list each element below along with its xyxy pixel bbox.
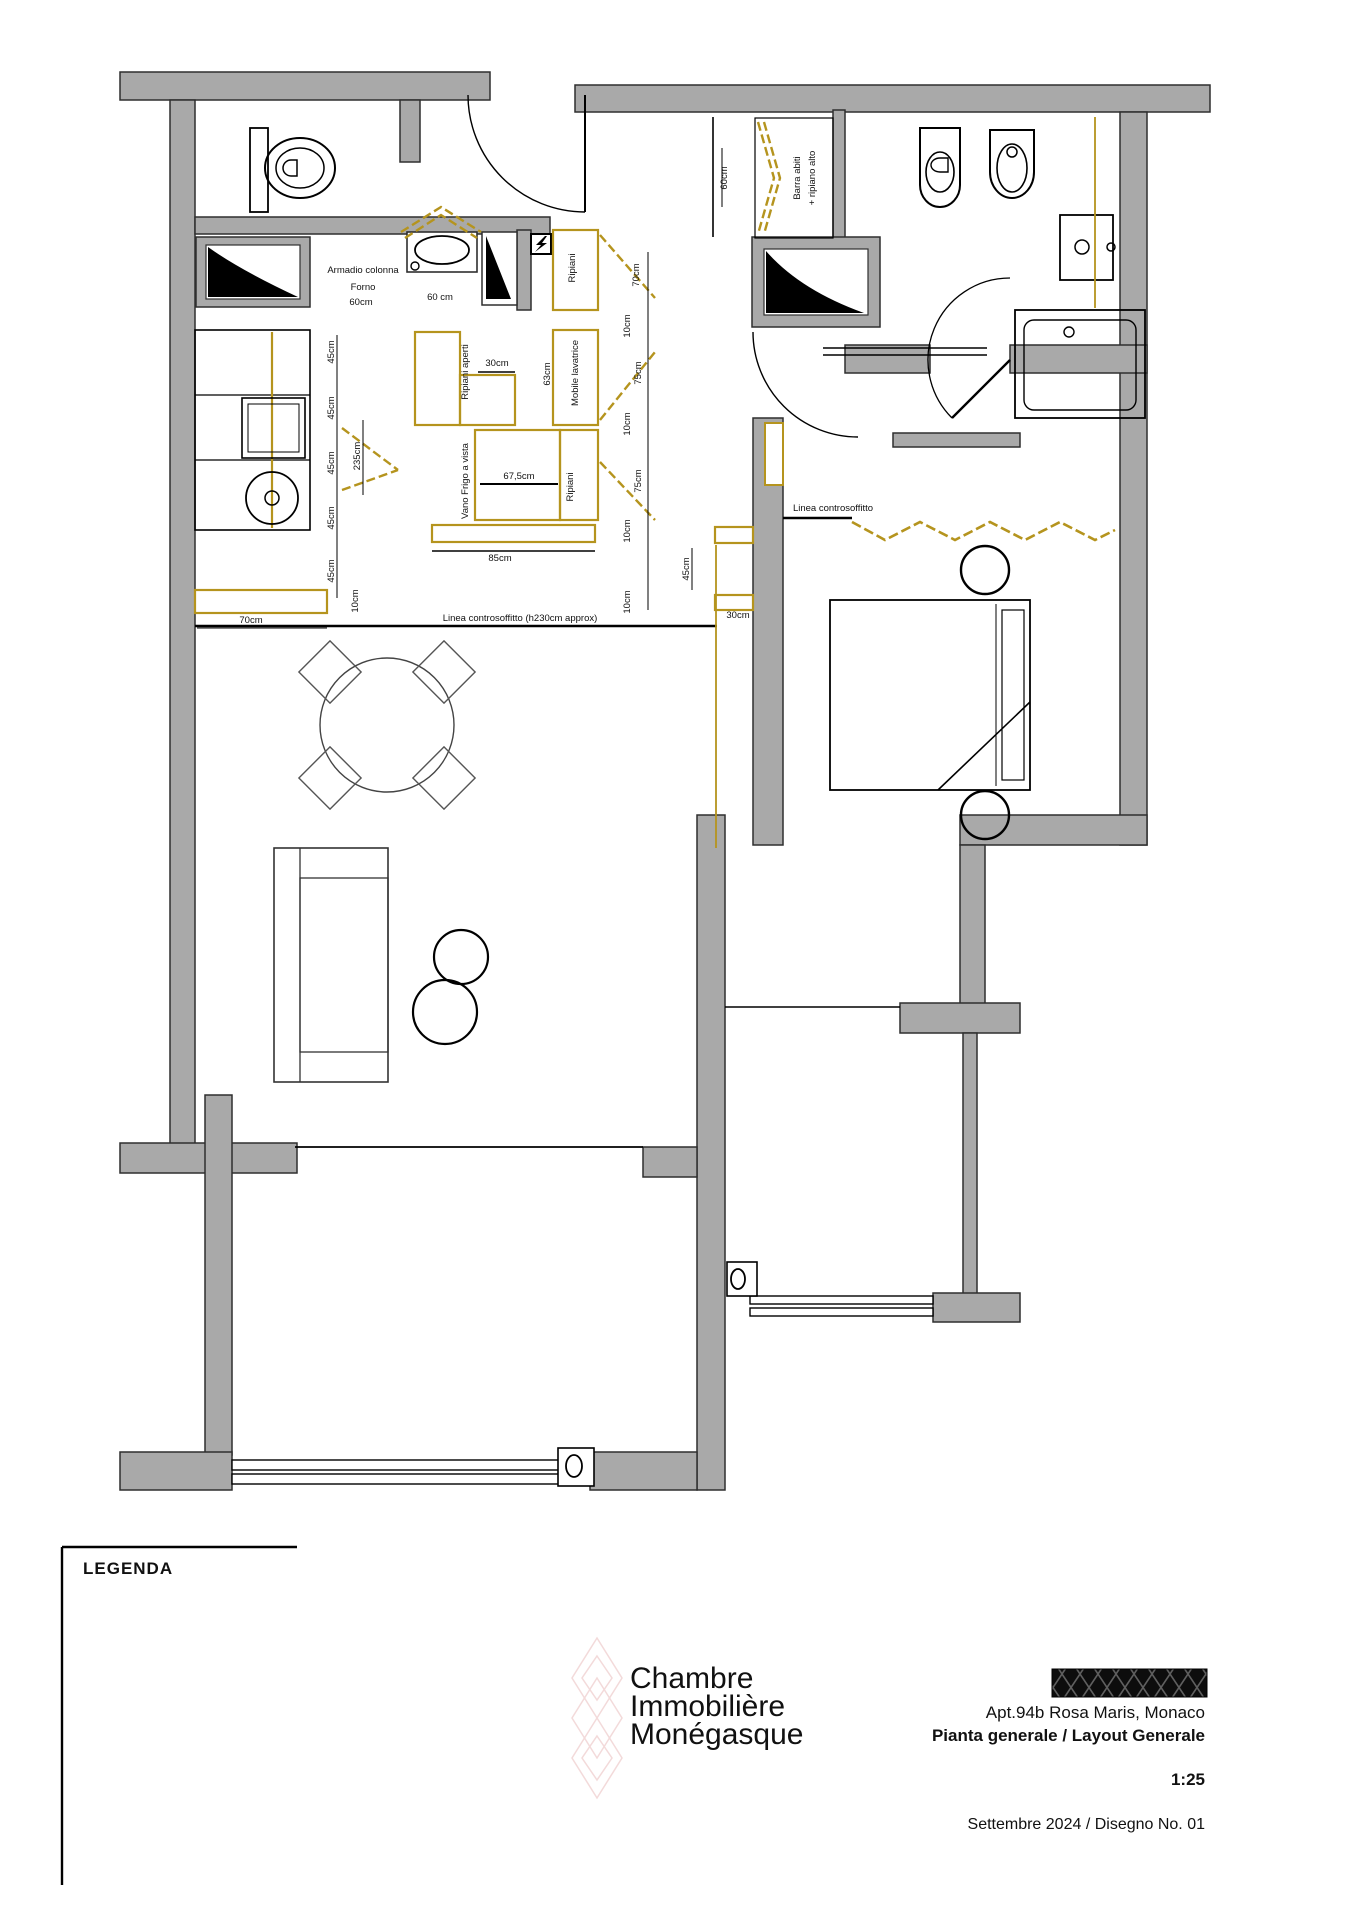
legend-title: LEGENDA xyxy=(83,1559,173,1578)
plan-label: Ripiani aperti xyxy=(460,344,471,399)
accordion-door-dashed xyxy=(758,122,774,234)
plan-label: Linea controsoffitto (h230cm approx) xyxy=(443,613,598,624)
plan-label: Armadio colonna xyxy=(327,265,399,276)
wall-terrace2-parapet xyxy=(963,1033,977,1295)
drawing-issue: Settembre 2024 / Disegno No. 01 xyxy=(968,1816,1206,1833)
watermark-text: Monégasque xyxy=(630,1718,803,1751)
plan-label: 63cm xyxy=(542,362,553,385)
wall-bath2-bottom-a xyxy=(845,345,930,373)
floor-plan-sheet: Armadio colonnaForno60cm60 cmRipianiRipi… xyxy=(0,0,1357,1920)
plan-label: 235cm xyxy=(352,442,363,471)
plan-label: Barra abiti xyxy=(792,156,803,199)
plan-label: Ripiani xyxy=(565,472,576,501)
chair xyxy=(299,747,361,809)
wall-bath1-right xyxy=(400,100,420,162)
kitchen xyxy=(195,117,753,628)
kitchen-sink-square xyxy=(242,398,305,458)
plan-label: + ripiano alto xyxy=(807,151,818,206)
pouf xyxy=(413,980,477,1044)
sofa xyxy=(274,848,388,1082)
plan-label: 70cm xyxy=(631,263,642,286)
wardrobe-notch xyxy=(765,423,783,485)
window-rail xyxy=(232,1460,588,1470)
plan-label: 67,5cm xyxy=(503,471,534,482)
plan-label: Linea controsoffitto xyxy=(793,503,873,514)
plan-label: 85cm xyxy=(488,553,511,564)
wall-top-right xyxy=(575,85,1210,112)
washbasin-cabinet xyxy=(1060,215,1113,280)
plan-label: 10cm xyxy=(350,589,361,612)
wall-window-cap-left xyxy=(120,1452,232,1490)
plan-label: 10cm xyxy=(622,590,633,613)
wall-central xyxy=(697,815,725,1490)
legend-box: LEGENDA xyxy=(62,1547,297,1885)
wall-bedroom-top xyxy=(893,433,1020,447)
kitchen-bench xyxy=(432,525,595,542)
plan-label: Forno xyxy=(351,282,376,293)
wall-bedroom-bottom-right xyxy=(960,815,1147,845)
window-rail xyxy=(750,1308,933,1316)
wall-top-left xyxy=(120,72,490,100)
bed xyxy=(830,600,1030,790)
drawing-scale: 1:25 xyxy=(1171,1770,1205,1789)
pouf xyxy=(434,930,488,984)
plan-label: 45cm xyxy=(326,559,337,582)
title-block: Apt.94b Rosa Maris, Monaco Pianta genera… xyxy=(932,1669,1207,1833)
plan-label: 75cm xyxy=(633,469,644,492)
plan-label: 30cm xyxy=(485,358,508,369)
wardrobe-zigzag xyxy=(852,522,1115,540)
bed-pillows xyxy=(1002,610,1024,780)
plan-label: 45cm xyxy=(681,557,692,580)
electrical-panel-icon xyxy=(531,234,551,254)
living-room xyxy=(195,545,717,1082)
drain-box xyxy=(558,1448,594,1486)
chair xyxy=(413,747,475,809)
wall-right-mid xyxy=(960,845,985,1008)
wall-terrace2-top xyxy=(900,1003,1020,1033)
plan-label: 70cm xyxy=(239,615,262,626)
dining-table xyxy=(320,658,454,792)
kitchen-washbasin xyxy=(407,232,477,272)
plan-label: 10cm xyxy=(622,412,633,435)
plan-label: 45cm xyxy=(326,451,337,474)
plan-label: 60 cm xyxy=(427,292,453,303)
window-rail xyxy=(232,1474,588,1484)
project-name: Apt.94b Rosa Maris, Monaco xyxy=(986,1703,1205,1722)
plan-label: 45cm xyxy=(326,396,337,419)
plan-label: Mobile lavatrice xyxy=(570,340,581,406)
plan-label: 10cm xyxy=(622,314,633,337)
door-arc xyxy=(468,95,585,212)
redacted-logo xyxy=(1052,1669,1207,1697)
plan-label: 30cm xyxy=(726,610,749,621)
plan-label: 45cm xyxy=(326,340,337,363)
chair xyxy=(413,641,475,703)
bed-fold-line xyxy=(938,702,1030,790)
wall-balcony1-stub-right xyxy=(643,1147,697,1177)
entry-door xyxy=(468,95,585,212)
plan-label: 10cm xyxy=(622,519,633,542)
plan-label: Ripiani xyxy=(567,253,578,282)
drawing-title: Pianta generale / Layout Generale xyxy=(932,1726,1205,1745)
plan-label: 60cm xyxy=(349,297,372,308)
plan-label: 60cm xyxy=(719,166,730,189)
plan-label: Vano Frigo a vista xyxy=(460,442,471,519)
wall-right-outer xyxy=(1120,112,1147,845)
wall-terrace2-bottom xyxy=(933,1293,1020,1322)
balconies xyxy=(232,1147,933,1486)
bathroom1-fixtures xyxy=(250,128,335,212)
window-rail xyxy=(750,1296,933,1304)
wall-window-cap-right xyxy=(590,1452,697,1490)
kitchen-bench-left xyxy=(195,590,327,613)
wall-closet-right xyxy=(833,110,845,238)
wall-left-outer xyxy=(170,100,195,1145)
watermark-logo xyxy=(572,1638,622,1798)
wall-kitchen-divider xyxy=(517,230,531,310)
wall-bath2-bottom-b xyxy=(1010,345,1147,373)
chair xyxy=(299,641,361,703)
nightstand-lamp xyxy=(961,546,1009,594)
plan-label: 45cm xyxy=(326,506,337,529)
plan-label: 75cm xyxy=(633,361,644,384)
watermark: Chambre Immobilière Monégasque xyxy=(572,1638,803,1798)
wall-balcony1-left xyxy=(205,1095,232,1455)
